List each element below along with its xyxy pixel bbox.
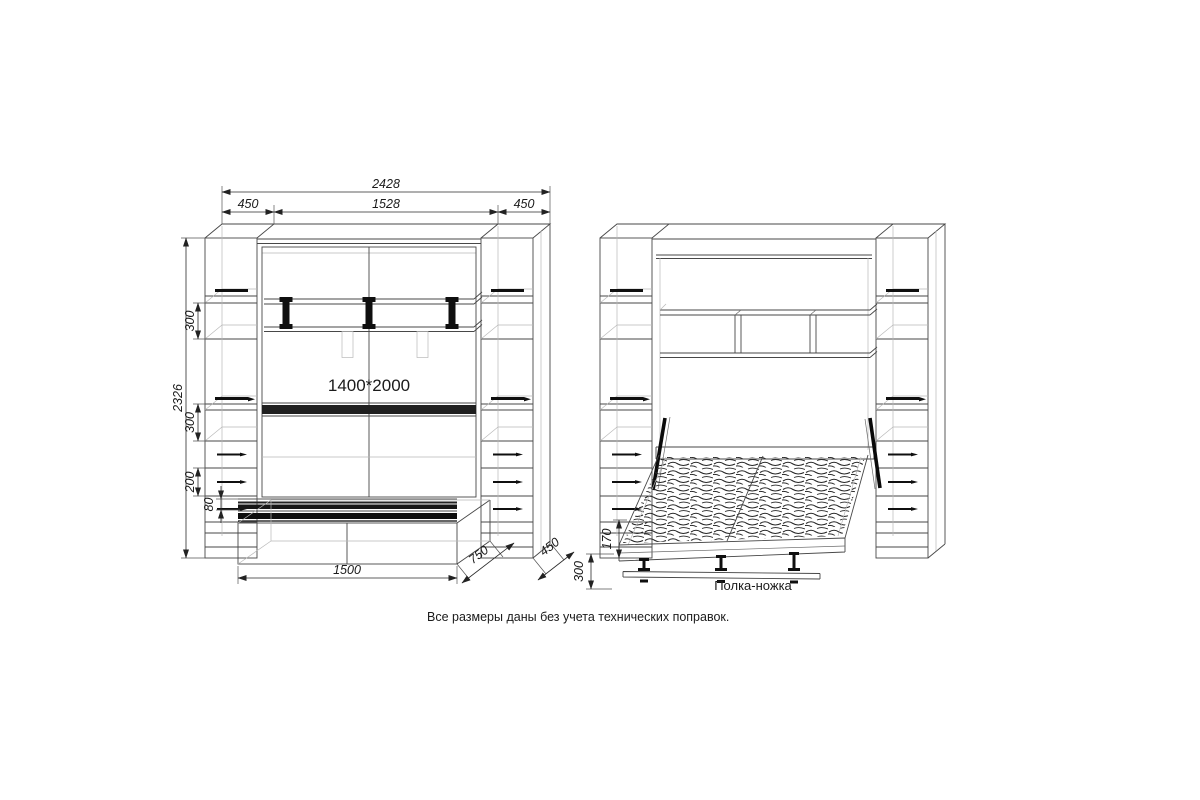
dim-drawer-zone: 200 bbox=[183, 472, 197, 494]
pedestal-right-closed bbox=[481, 224, 550, 558]
dim-center-width: 1528 bbox=[372, 197, 400, 211]
dim-left-width: 450 bbox=[238, 197, 259, 211]
pedestal-right-open bbox=[876, 224, 945, 558]
shelf-bracket bbox=[280, 297, 459, 329]
open-bed bbox=[600, 450, 890, 561]
shelf-leg-label: Полка-ножка bbox=[714, 578, 792, 593]
gas-lift-right bbox=[865, 418, 880, 489]
dim-total-width: 2428 bbox=[371, 177, 400, 191]
dim-lower-shelf-gap: 300 bbox=[183, 412, 197, 433]
center-cabinet-closed bbox=[257, 239, 481, 497]
dim-total-height: 2326 bbox=[171, 384, 185, 413]
dim-right-width: 450 bbox=[514, 197, 535, 211]
drawing-note: Все размеры даны без учета технических п… bbox=[427, 610, 729, 624]
blueprint-canvas: 1400*2000 2428 450 1528 450 bbox=[0, 0, 1200, 800]
blueprint-page: 1400*2000 2428 450 1528 450 bbox=[0, 0, 1200, 800]
dim-shelf-leg-height: 300 bbox=[572, 561, 586, 582]
dim-upper-shelf-gap: 300 bbox=[183, 311, 197, 332]
bridge-shelf bbox=[660, 304, 877, 358]
open-view-drawing: Полка-ножка 170 300 bbox=[572, 224, 945, 593]
wall-shelf bbox=[264, 292, 482, 358]
bench-folded-bed bbox=[238, 499, 490, 564]
closed-view-drawing: 1400*2000 2428 450 1528 450 bbox=[171, 177, 574, 584]
dim-frame-height: 170 bbox=[600, 529, 614, 550]
dimensions-open: 170 300 bbox=[572, 520, 627, 589]
center-cabinet-open bbox=[652, 239, 876, 450]
dim-bench-width: 1500 bbox=[333, 563, 361, 577]
bed-size-label: 1400*2000 bbox=[328, 376, 410, 395]
dim-plinth: 80 bbox=[202, 498, 216, 512]
mattress-slats bbox=[600, 450, 890, 550]
